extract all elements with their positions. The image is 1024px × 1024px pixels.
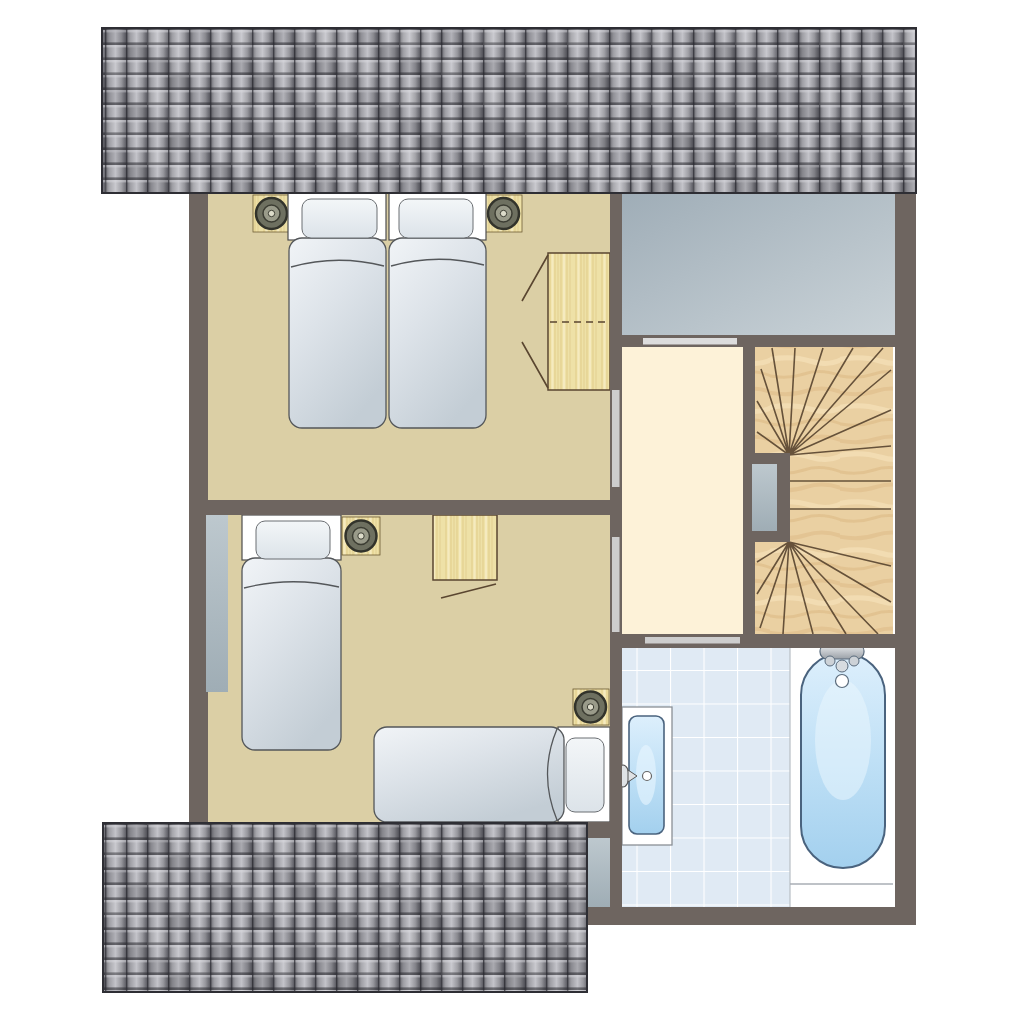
roof-bottom	[103, 823, 587, 992]
bedside-lamp-icon	[256, 198, 287, 229]
floor-plan-canvas: Upper floor plan	[0, 0, 1024, 1024]
wall-exterior-right	[895, 193, 916, 925]
void-floor	[622, 193, 895, 337]
bedside-lamp-icon	[346, 521, 377, 552]
twin-bed-right	[389, 193, 486, 428]
basin-drain-icon	[643, 772, 652, 781]
hall-landing-floor	[622, 347, 743, 637]
bathroom	[617, 644, 895, 908]
void-area	[622, 193, 895, 337]
washbasin	[617, 707, 672, 845]
railing-void-edge	[643, 338, 737, 345]
door-opening-bedroom-2	[612, 537, 620, 632]
faucet-spout-icon	[836, 660, 848, 672]
drain-icon	[836, 675, 849, 688]
faucet-handle-icon	[849, 656, 859, 666]
window-bedroom-2	[206, 515, 228, 692]
twin-bed-left	[288, 193, 386, 428]
wall-bedroom-divider	[189, 500, 622, 515]
floor-plan-drawing: Upper floor plan	[0, 0, 1024, 1024]
newel-inset-panel	[752, 464, 777, 531]
wall-exterior-bottom	[585, 907, 916, 925]
bathtub	[801, 644, 885, 868]
bedside-lamp-icon	[575, 692, 606, 723]
bathtub-sheen	[815, 680, 871, 800]
roof-top	[102, 28, 916, 193]
door-opening-bathroom	[645, 637, 740, 644]
window-bathroom	[588, 838, 610, 907]
single-bed-vertical	[242, 515, 341, 750]
faucet-handle-icon	[825, 656, 835, 666]
door-opening-bedroom-1	[612, 390, 620, 487]
bedside-lamp-icon	[488, 198, 519, 229]
single-bed-horizontal	[374, 727, 610, 822]
